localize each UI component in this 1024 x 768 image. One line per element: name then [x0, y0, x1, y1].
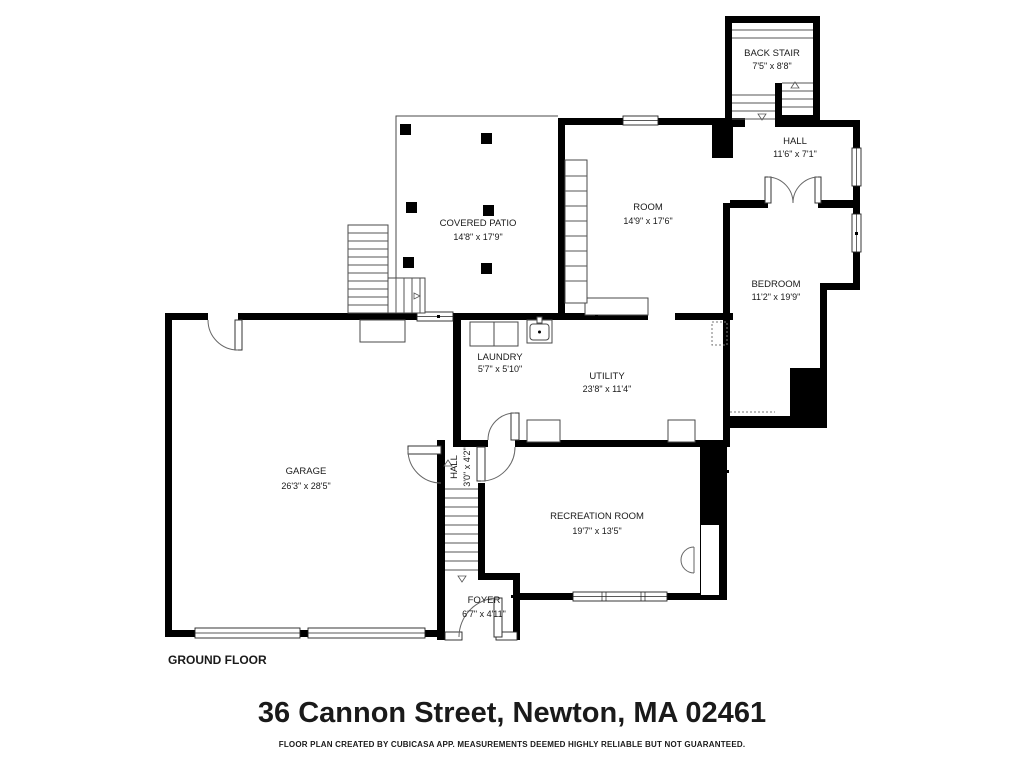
room-label-hall-upper: HALL 11'6" x 7'1": [773, 136, 817, 159]
room-label-back-stair: BACK STAIR 7'5" x 8'8": [744, 48, 800, 71]
floor-plan-page: BACK STAIR 7'5" x 8'8" HALL 11'6" x 7'1"…: [0, 0, 1024, 768]
disclaimer-text: FLOOR PLAN CREATED BY CUBICASA APP. MEAS…: [279, 740, 746, 749]
pass-through: [585, 298, 648, 315]
room-name: ROOM: [633, 202, 663, 213]
hall-lower-dims: 3'0" x 4'2": [462, 447, 472, 486]
room-label-room: ROOM 14'9" x 17'6": [623, 202, 672, 226]
laundry-fixtures: [470, 317, 552, 346]
bedroom-double-door-left-arc: [768, 177, 793, 203]
address-title: 36 Cannon Street, Newton, MA 02461: [258, 697, 766, 729]
recreation-name: RECREATION ROOM: [550, 511, 644, 522]
laundry-dims: 5'7" x 5'10": [478, 364, 522, 374]
covered-patio-name: COVERED PATIO: [440, 218, 517, 229]
recreation-dims: 19'7" x 13'5": [572, 526, 621, 536]
recreation-door-leaf: [477, 447, 485, 481]
room-ladder: [565, 160, 587, 303]
garage-dims: 26'3" x 28'5": [281, 481, 330, 491]
bedroom-double-door-right-arc: [793, 177, 818, 203]
garage-hall-door-leaf: [408, 446, 441, 454]
back-stair-name: BACK STAIR: [744, 48, 800, 59]
utility-dims: 23'8" x 11'4": [583, 384, 632, 394]
room-label-garage: GARAGE 26'3" x 28'5": [281, 466, 330, 491]
room-label-hall-lower: HALL 3'0" x 4'2": [449, 447, 472, 486]
garage-doors: [195, 628, 425, 638]
foyer-name: FOYER: [468, 595, 501, 606]
utility-door-leaf: [511, 413, 519, 440]
garage-hall-door-arc: [408, 450, 441, 483]
floor-plan-canvas: BACK STAIR 7'5" x 8'8" HALL 11'6" x 7'1"…: [0, 0, 1024, 768]
hall-upper-dims: 11'6" x 7'1": [773, 149, 817, 159]
patio-stairs: [348, 225, 425, 313]
garage-name: GARAGE: [286, 466, 327, 477]
recreation-side-door-arc: [681, 547, 694, 573]
bedroom-dims: 11'2" x 19'9": [752, 292, 801, 302]
laundry-name: LAUNDRY: [477, 352, 523, 363]
garage-entry-door-arc: [208, 320, 238, 350]
floor-label: GROUND FLOOR: [168, 653, 267, 667]
room-label-bedroom: BEDROOM 11'2" x 19'9": [751, 279, 800, 302]
patio-posts: [400, 124, 494, 274]
foyer-dims: 6'7" x 4'11": [462, 609, 506, 619]
room-label-laundry: LAUNDRY 5'7" x 5'10": [477, 352, 523, 374]
recreation-door-arc: [481, 447, 515, 481]
room-label-covered-patio: COVERED PATIO 14'8" x 17'9": [440, 218, 517, 242]
room-label-recreation: RECREATION ROOM 19'7" x 13'5": [550, 511, 644, 536]
covered-patio-dims: 14'8" x 17'9": [453, 232, 502, 242]
garage-entry-door-leaf: [235, 320, 242, 350]
back-stair-treads: [732, 30, 813, 120]
room-dims: 14'9" x 17'6": [623, 216, 672, 226]
utility-fixtures: [360, 320, 775, 442]
bedroom-double-door-left-leaf: [765, 177, 771, 203]
room-label-utility: UTILITY 23'8" x 11'4": [583, 371, 632, 394]
back-stair-dims: 7'5" x 8'8": [752, 61, 791, 71]
hall-lower-name: HALL: [449, 455, 460, 479]
utility-name: UTILITY: [589, 371, 625, 382]
bedroom-name: BEDROOM: [751, 279, 800, 290]
bedroom-double-door-right-leaf: [815, 177, 821, 203]
hall-upper-name: HALL: [783, 136, 807, 147]
